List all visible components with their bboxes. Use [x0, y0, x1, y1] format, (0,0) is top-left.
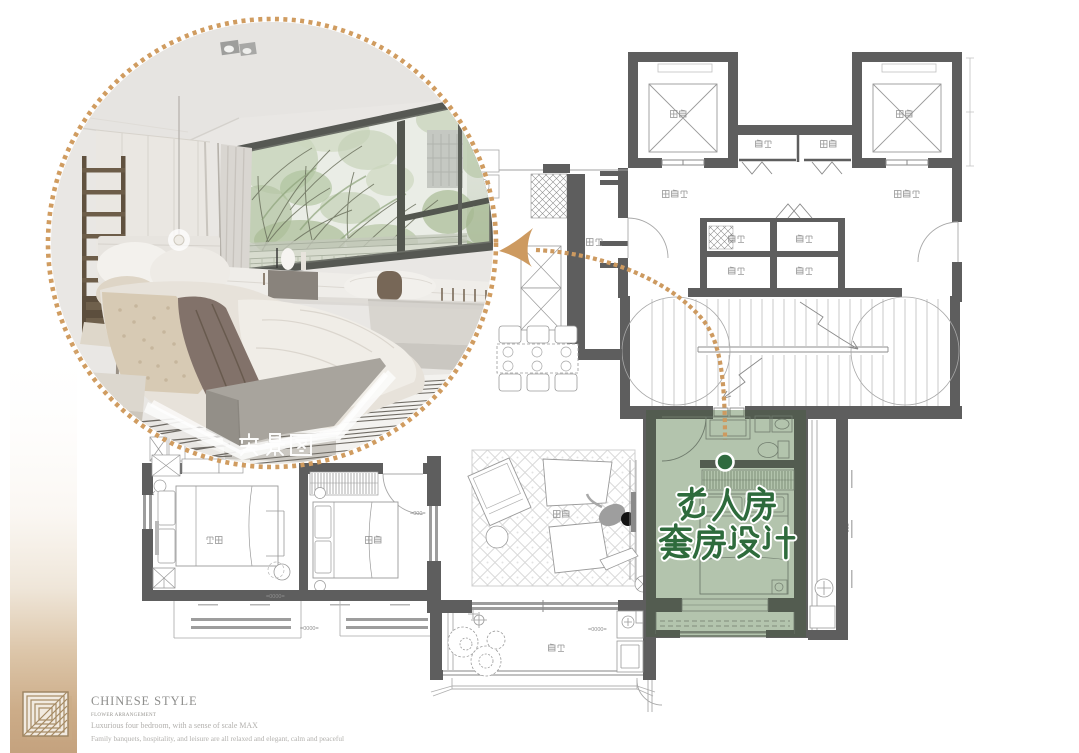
svg-text:=000=: =000=	[410, 511, 426, 517]
svg-text:FLOWER ARRANGEMENT: FLOWER ARRANGEMENT	[91, 713, 156, 718]
svg-text:Family banquets, hospitality,: Family banquets, hospitality, and leisur…	[91, 734, 344, 743]
svg-text:=0000=: =0000=	[266, 594, 285, 600]
svg-text:Luxurious four bedroom, with a: Luxurious four bedroom, with a sense of …	[91, 721, 258, 730]
svg-text:CHINESE STYLE: CHINESE STYLE	[91, 694, 198, 708]
svg-text:=0000=: =0000=	[300, 626, 319, 632]
svg-text:=0000=: =0000=	[588, 627, 607, 633]
